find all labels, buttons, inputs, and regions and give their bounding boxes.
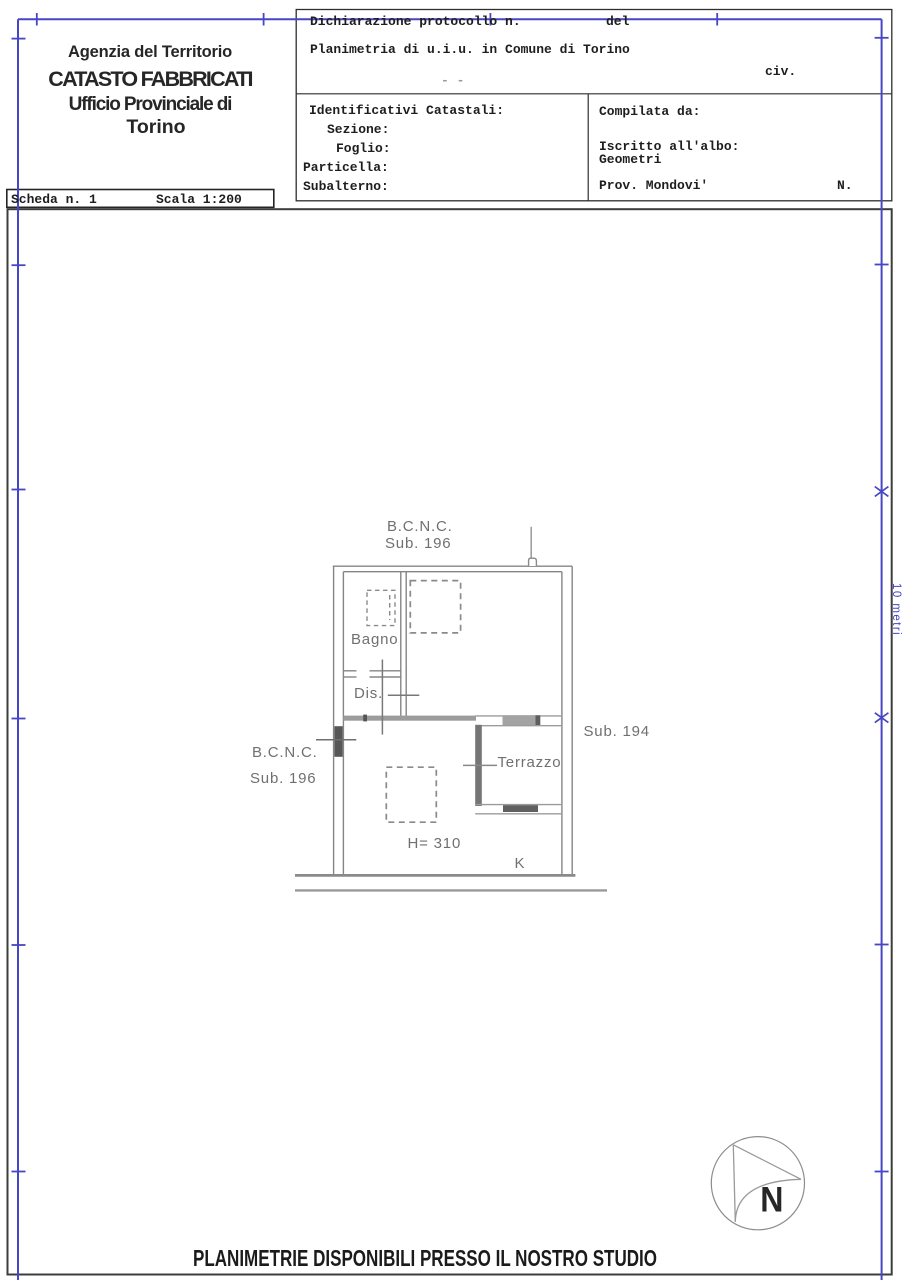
svg-text:N: N bbox=[760, 1180, 783, 1219]
